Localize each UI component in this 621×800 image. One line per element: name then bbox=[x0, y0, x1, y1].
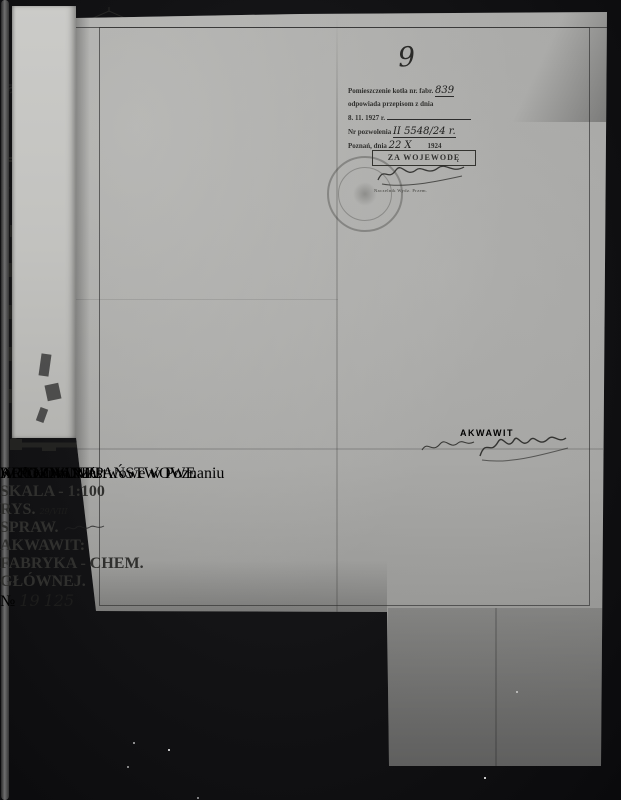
under-sheet-edge bbox=[12, 6, 76, 438]
rys-label: RYS. bbox=[0, 501, 35, 518]
lower-flap-shade bbox=[388, 608, 603, 766]
page-number: 9 bbox=[397, 41, 416, 73]
note-line5: Poznań, dnia bbox=[348, 142, 387, 150]
approval-note: Pomieszczenie kotła nr. fabr. 839 odpowi… bbox=[348, 84, 538, 153]
note-line5-year: 1924 bbox=[427, 142, 441, 150]
vertical-fold-2 bbox=[495, 608, 497, 766]
title-block-col-left: SKALA - 1:100 RYS. 29/VIII SPRAW. bbox=[0, 483, 144, 537]
title-block-grid: SKALA - 1:100 RYS. 29/VIII SPRAW. AKWAWI… bbox=[0, 483, 144, 611]
archive-footer-label: Archiwum Państwowe w Poznaniu bbox=[0, 465, 224, 482]
company-line1: AKWAWIT: bbox=[0, 537, 144, 555]
scale-label: SKALA - 1:100 bbox=[0, 483, 144, 501]
note-line2: odpowiada przepisom z dnia bbox=[348, 100, 433, 108]
note-line3-blank bbox=[387, 111, 471, 120]
number-top: 19 bbox=[19, 591, 39, 610]
number-sign: № bbox=[0, 593, 15, 610]
company-line3: GŁÓWNEJ. bbox=[0, 573, 144, 591]
company-line2: FABRYKA - CHEM. bbox=[0, 555, 144, 573]
archive-footer-bar: Archiwum Państwowe w Poznaniu bbox=[0, 465, 224, 483]
rys-handwritten: 29/VIII bbox=[39, 507, 67, 516]
title-block-col-company: AKWAWIT: FABRYKA - CHEM. GŁÓWNEJ. bbox=[0, 537, 144, 591]
spraw-label: SPRAW. bbox=[0, 519, 59, 536]
note-line1: Pomieszczenie kotła nr. fabr. bbox=[348, 87, 433, 95]
note-line1-hand: 839 bbox=[435, 85, 454, 97]
note-line4-hand: II 5548/24 r. bbox=[393, 126, 456, 138]
number-bottom: 125 bbox=[44, 591, 75, 610]
title-block: KOTŁOWNIA. SKALA - 1:100 RYS. 29/VIII SP… bbox=[0, 465, 144, 611]
approval-signatures bbox=[418, 430, 578, 468]
note-line4: Nr pozwolenia bbox=[348, 128, 391, 136]
title-block-col-number: № 19 125 bbox=[0, 591, 144, 611]
spraw-signature bbox=[63, 524, 107, 533]
archival-scan-viewer: 1,985 8,500 3,300 2,380 bbox=[0, 0, 621, 800]
film-edge-bar bbox=[1, 0, 9, 800]
note-line3: 8. 11. 1927 r. bbox=[348, 114, 385, 122]
round-official-stamp bbox=[327, 156, 403, 232]
